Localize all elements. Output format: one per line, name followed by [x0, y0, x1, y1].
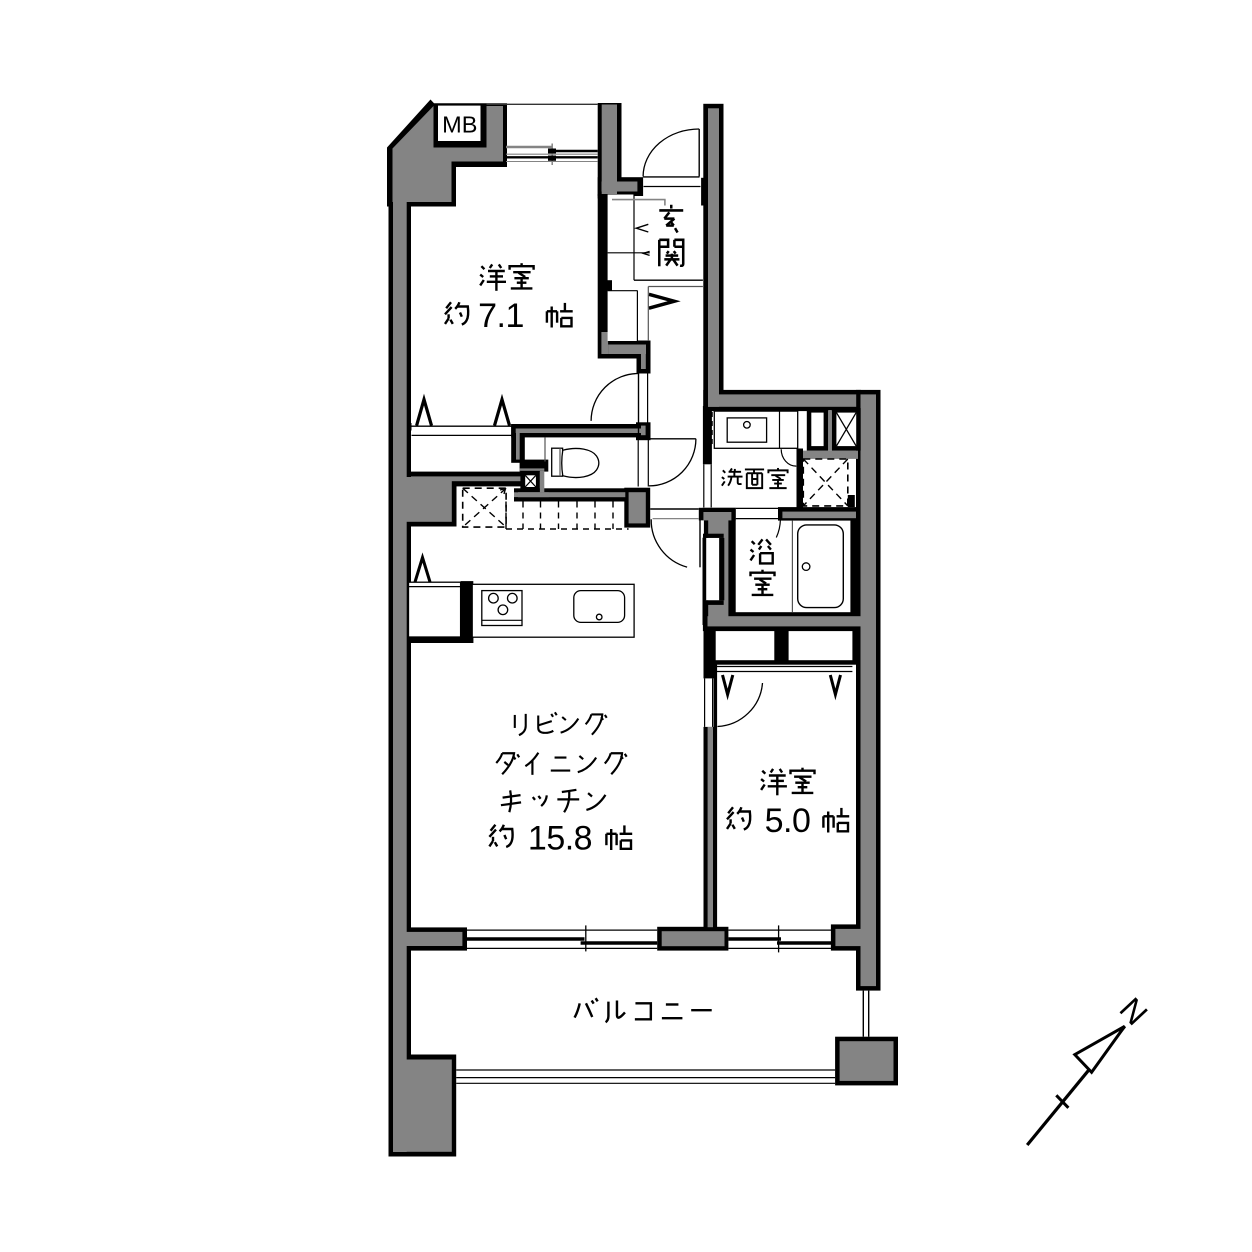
svg-text:MB: MB — [442, 112, 477, 138]
svg-text:7.1: 7.1 — [478, 297, 524, 335]
svg-text:5.0: 5.0 — [765, 802, 811, 840]
svg-text:15.8: 15.8 — [528, 820, 592, 858]
